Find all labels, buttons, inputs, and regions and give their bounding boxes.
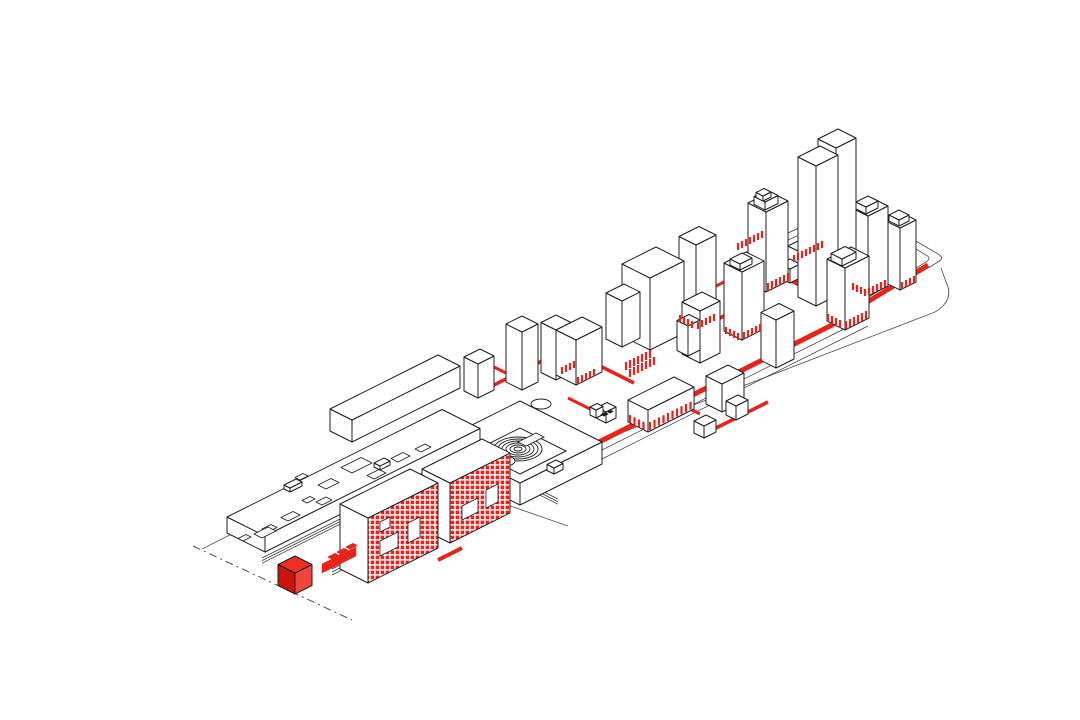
deck-opening — [531, 399, 551, 409]
tower-pair-front-left — [506, 324, 522, 390]
tower-pair-front-right — [522, 324, 538, 390]
tower-4-right — [776, 311, 794, 368]
tower-pair-rear-left — [541, 323, 556, 381]
tower-mid-stepped-right — [700, 301, 720, 363]
tower-4-left — [761, 313, 776, 369]
site-boundary-tip — [935, 268, 949, 312]
tower-big-annex-right — [622, 292, 640, 347]
tower-mid-step-front-left — [677, 321, 688, 357]
axonometric-drawing — [0, 0, 1080, 720]
red-street-11 — [438, 548, 462, 560]
canvas — [0, 0, 1080, 720]
tower-big-annex-left — [606, 293, 622, 347]
tall-tower-front-left — [798, 157, 816, 306]
